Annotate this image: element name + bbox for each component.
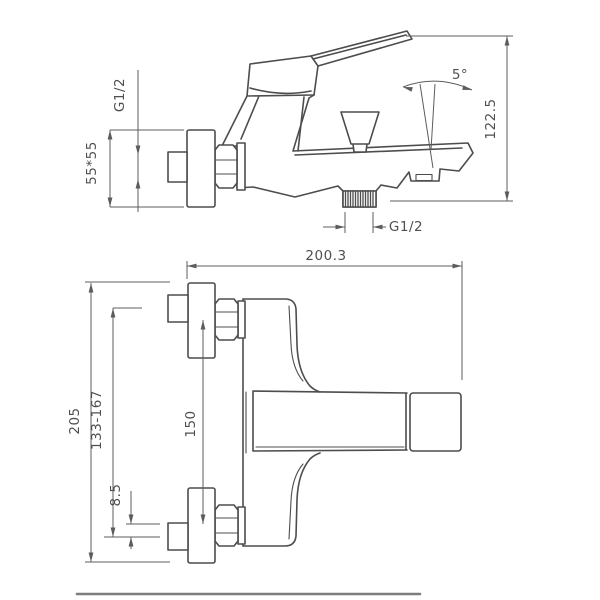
escutcheon-top xyxy=(188,283,215,358)
spout-plan xyxy=(253,391,407,451)
outlet-thread xyxy=(343,191,376,207)
inlet-stub-top xyxy=(168,295,188,322)
dim-spout-angle-label: 5° xyxy=(452,67,468,83)
spout-tip xyxy=(410,393,461,451)
dim-outlet-thread-label: G1/2 xyxy=(389,219,423,235)
hex-nut xyxy=(215,145,237,188)
inlet-stub-bottom xyxy=(168,523,188,550)
upper-wing xyxy=(243,299,320,392)
drawing-canvas: G1/2 55*55 122.5 5° G1/2 200.3 205 133-1… xyxy=(0,0,600,600)
dim-inlet-spacing-label: 150 xyxy=(183,410,199,437)
hex-nut-bottom xyxy=(215,505,238,546)
union-collar xyxy=(237,143,245,190)
union-collar-bottom xyxy=(238,507,245,544)
dim-escutcheon-size-label: 55*55 xyxy=(84,141,100,185)
plan-view xyxy=(168,283,461,563)
escutcheon-bottom xyxy=(188,488,215,563)
dim-inlet-thread-label: G1/2 xyxy=(112,78,128,112)
diverter-knob xyxy=(341,112,379,152)
union-collar-top xyxy=(238,301,245,338)
hex-nut-top xyxy=(215,299,238,340)
side-view xyxy=(168,31,473,207)
escutcheon xyxy=(187,130,215,207)
technical-drawing: G1/2 55*55 122.5 5° G1/2 200.3 205 133-1… xyxy=(0,0,600,600)
dim-overall-height-label: 122.5 xyxy=(483,98,499,139)
dim-overall-width-label: 205 xyxy=(67,407,83,434)
dim-eccentric-offset-label: 8.5 xyxy=(108,484,124,507)
lower-wing xyxy=(243,453,320,546)
inlet-stub xyxy=(168,152,187,182)
dim-adjustment-range-label: 133-167 xyxy=(89,390,105,450)
dim-projection-length-label: 200.3 xyxy=(305,248,346,264)
